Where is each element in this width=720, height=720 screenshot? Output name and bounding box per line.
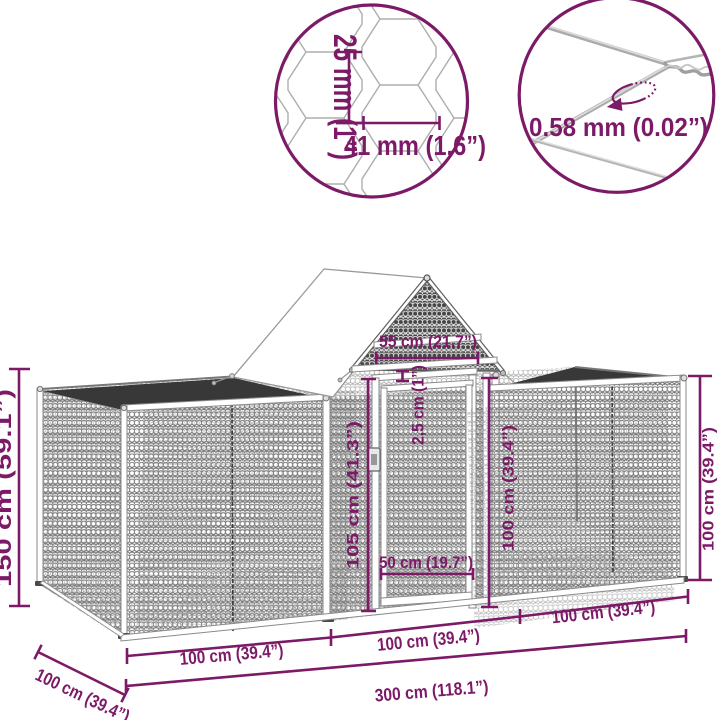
svg-text:100 cm (39.4”): 100 cm (39.4”) xyxy=(701,427,718,551)
svg-text:41 mm (1.6”): 41 mm (1.6”) xyxy=(344,130,486,161)
svg-text:50 cm (19.7”): 50 cm (19.7”) xyxy=(379,553,473,572)
svg-text:100 cm (39.4”): 100 cm (39.4”) xyxy=(501,425,518,551)
svg-text:55 cm (21.7”): 55 cm (21.7”) xyxy=(379,332,477,351)
svg-text:105 cm (41.3”): 105 cm (41.3”) xyxy=(345,421,363,569)
svg-text:2,5 cm (1”): 2,5 cm (1”) xyxy=(410,365,428,445)
svg-text:0.58 mm (0.02”): 0.58 mm (0.02”) xyxy=(529,112,708,142)
svg-text:150 cm (59.1”): 150 cm (59.1”) xyxy=(0,389,16,587)
